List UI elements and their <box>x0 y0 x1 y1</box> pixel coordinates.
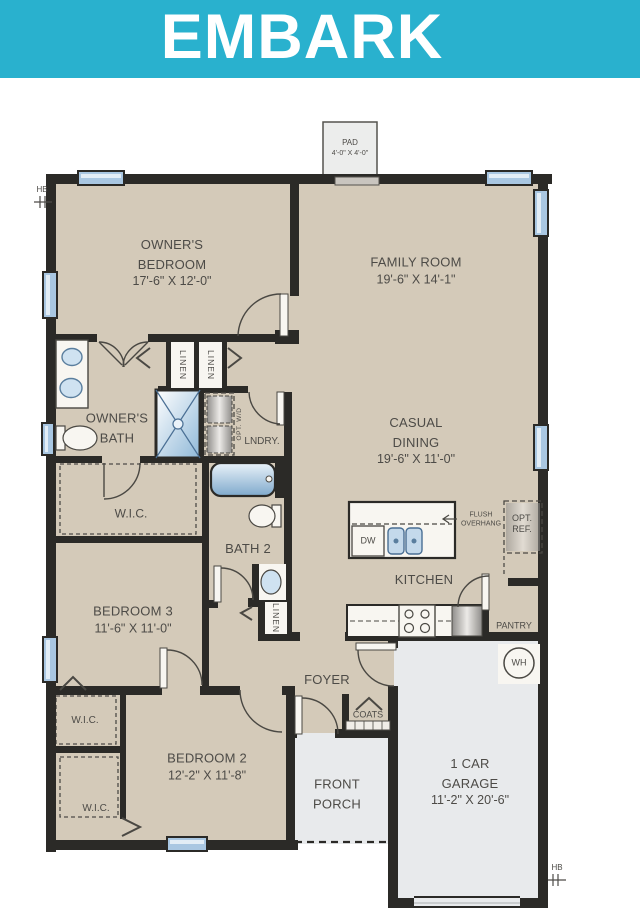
label-family-room: FAMILY ROOM 19'-6" X 14'-1" <box>326 253 506 288</box>
coats-shelf <box>346 721 390 730</box>
label-owners-bedroom: OWNER'S BEDROOM 17'-6" X 12'-0" <box>116 235 228 289</box>
garage-door <box>414 894 520 906</box>
sink-icon <box>62 349 82 366</box>
label-bath2: BATH 2 <box>208 539 288 559</box>
label-hose-bib-bottom: HB <box>551 863 562 873</box>
label-pantry: PANTRY <box>496 621 532 632</box>
label-laundry: LNDRY. <box>244 436 279 448</box>
label-dishwasher: DW <box>361 536 376 547</box>
label-hose-bib-top: HB <box>36 185 47 195</box>
bathtub <box>211 463 275 496</box>
label-kitchen: KITCHEN <box>395 570 453 590</box>
label-pad: PAD4'-0" X 4'-0" <box>332 138 368 159</box>
label-flush-overhang: FLUSHOVERHANG <box>461 511 501 529</box>
range <box>399 605 435 637</box>
label-bedroom2: BEDROOM 2 12'-2" X 11'-8" <box>122 749 292 784</box>
label-wic-owners: W.I.C. <box>115 507 148 522</box>
dryer-icon <box>207 426 232 453</box>
label-linen-2: LINEN <box>206 350 216 380</box>
label-water-heater: WH <box>512 658 527 669</box>
label-opt-wd: OPT. W/D <box>236 408 244 441</box>
washer-icon <box>207 396 232 423</box>
label-linen-3: LINEN <box>271 603 281 633</box>
label-bedroom3: BEDROOM 3 11'-6" X 11'-0" <box>48 602 218 637</box>
label-garage: 1 CAR GARAGE 11'-2" X 20'-6" <box>427 754 513 808</box>
label-owners-bath: OWNER'S BATH <box>81 408 153 447</box>
faucet-icon <box>266 476 272 482</box>
pad-base <box>335 177 379 185</box>
label-wic-bedroom3: W.I.C. <box>71 715 98 727</box>
sink-icon <box>60 379 82 398</box>
label-casual-dining: CASUAL DINING 19'-6" X 11'-0" <box>370 413 462 467</box>
shower-drain-icon <box>173 419 183 429</box>
label-linen-1: LINEN <box>178 350 188 380</box>
label-front-porch: FRONT PORCH <box>306 774 368 813</box>
toilet-icon <box>249 505 275 527</box>
label-coats: COATS <box>353 710 383 721</box>
label-foyer: FOYER <box>304 670 350 690</box>
label-opt-ref: OPT.REF. <box>512 513 532 535</box>
label-wic-bedroom2: W.I.C. <box>82 803 109 815</box>
sink-icon <box>261 570 281 594</box>
